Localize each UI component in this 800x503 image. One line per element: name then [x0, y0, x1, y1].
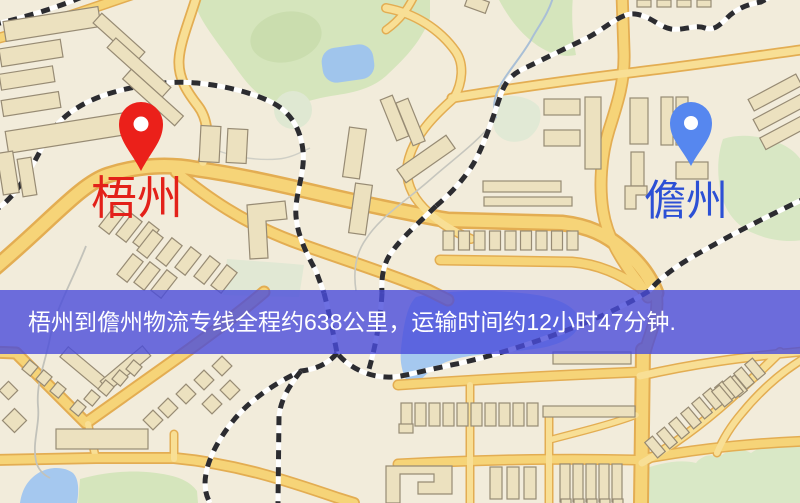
origin-pin-hole — [134, 117, 149, 132]
building — [443, 403, 454, 426]
building — [543, 406, 635, 417]
destination-pin-hole — [684, 116, 698, 130]
building — [586, 464, 596, 502]
building — [457, 403, 468, 426]
building — [505, 231, 516, 250]
building — [443, 231, 454, 250]
building — [552, 231, 563, 250]
building — [484, 197, 572, 206]
building — [513, 403, 524, 426]
building — [560, 464, 570, 502]
building — [574, 499, 584, 503]
building — [600, 499, 610, 503]
building — [56, 429, 148, 449]
building — [199, 126, 221, 163]
building — [415, 403, 426, 426]
building — [483, 181, 561, 192]
building — [561, 499, 571, 503]
building — [613, 499, 623, 503]
building — [474, 231, 485, 250]
building — [490, 231, 501, 250]
building — [544, 130, 580, 146]
building — [637, 0, 651, 7]
building — [585, 97, 601, 169]
building — [490, 467, 502, 499]
destination-label: 儋州 — [644, 177, 728, 224]
building — [587, 499, 597, 503]
banner-text: 梧州到儋州物流专线全程约638公里，运输时间约12小时47分钟. — [28, 309, 676, 335]
building — [536, 231, 547, 250]
building — [507, 467, 519, 499]
building — [677, 0, 691, 7]
building — [521, 231, 532, 250]
building — [471, 403, 482, 426]
building — [599, 464, 609, 502]
route-info-banner: 梧州到儋州物流专线全程约638公里，运输时间约12小时47分钟. — [0, 290, 800, 354]
building — [657, 0, 671, 7]
building — [544, 99, 580, 115]
map-canvas[interactable]: 梧州到儋州物流专线全程约638公里，运输时间约12小时47分钟. 梧州 儋州 — [0, 0, 800, 503]
building — [401, 403, 412, 426]
building — [524, 467, 536, 499]
road — [398, 459, 636, 464]
building — [697, 0, 711, 7]
building — [631, 152, 644, 186]
building — [573, 464, 583, 502]
building — [499, 403, 510, 426]
building — [612, 464, 622, 502]
logistics-route-map: 梧州到儋州物流专线全程约638公里，运输时间约12小时47分钟. 梧州 儋州 — [0, 0, 800, 503]
building — [630, 98, 648, 144]
building — [485, 403, 496, 426]
building — [527, 403, 538, 426]
origin-label: 梧州 — [91, 172, 183, 224]
building — [226, 128, 248, 163]
building — [567, 231, 578, 250]
building — [399, 424, 413, 433]
building — [429, 403, 440, 426]
building — [459, 231, 470, 250]
